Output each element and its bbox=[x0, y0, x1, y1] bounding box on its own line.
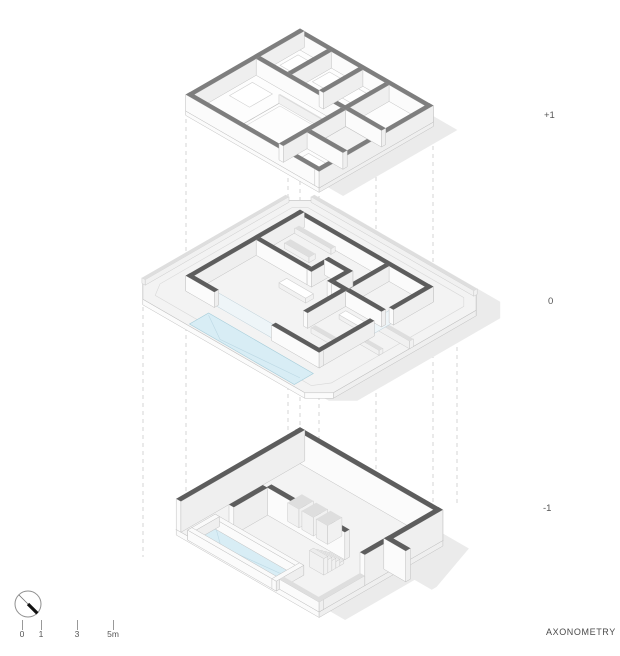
fa bbox=[319, 350, 323, 368]
north-arrow bbox=[15, 591, 41, 617]
fb bbox=[176, 499, 181, 533]
fb bbox=[279, 143, 283, 162]
scale-label: 3 bbox=[67, 629, 87, 639]
axonometry-drawing bbox=[0, 0, 620, 656]
fa bbox=[381, 309, 385, 327]
fb bbox=[319, 90, 323, 109]
fa bbox=[406, 548, 411, 582]
floor-minus1 bbox=[176, 427, 469, 620]
scale-label: 5m bbox=[103, 629, 123, 639]
fa bbox=[381, 128, 385, 147]
drawing-title: AXONOMETRY bbox=[546, 627, 616, 637]
fa bbox=[214, 290, 218, 308]
axonometry-page: +1 0 -1 AXONOMETRY 0 1 3 5m bbox=[0, 0, 620, 656]
fb bbox=[307, 269, 311, 287]
fb bbox=[303, 311, 307, 329]
fa bbox=[345, 530, 350, 560]
north-arrow-tail bbox=[19, 595, 28, 604]
scale-bar: 0 1 3 5m bbox=[10, 620, 140, 644]
fb bbox=[389, 307, 393, 325]
litef bbox=[324, 556, 328, 575]
fb bbox=[315, 169, 319, 188]
fa bbox=[343, 150, 347, 169]
level-label-ground: 0 bbox=[548, 296, 553, 307]
level-label-minus1: -1 bbox=[543, 503, 551, 514]
scale-label: 1 bbox=[31, 629, 51, 639]
north-arrow-needle bbox=[28, 604, 37, 613]
floor-plus1 bbox=[186, 29, 458, 197]
level-label-plus1: +1 bbox=[544, 110, 555, 121]
litef bbox=[328, 557, 332, 573]
floor-0 bbox=[142, 195, 500, 401]
scale-label: 0 bbox=[12, 629, 32, 639]
fb bbox=[305, 393, 334, 399]
